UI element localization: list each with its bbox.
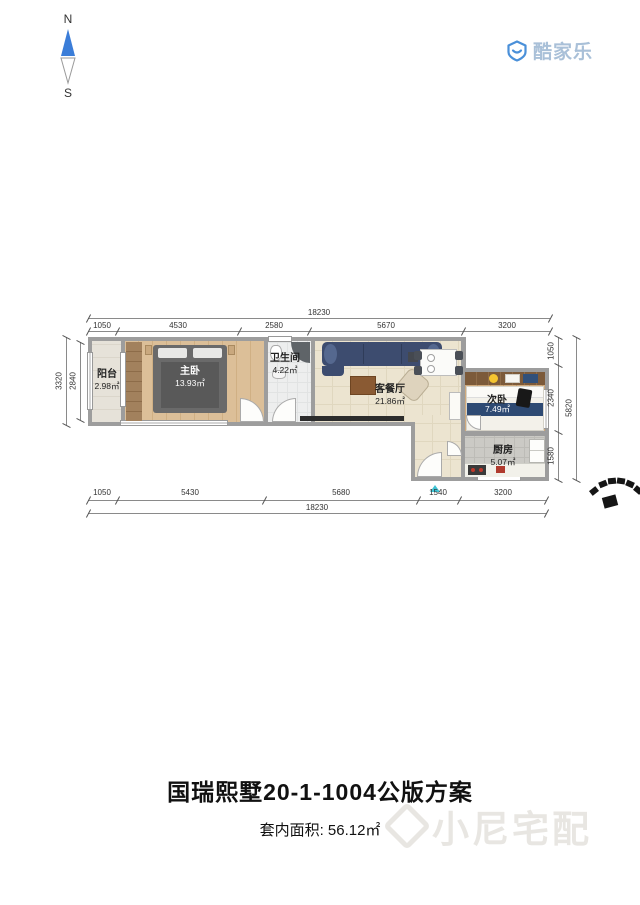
hall-cabinet <box>449 392 461 420</box>
nightstand-right <box>228 345 235 355</box>
bathroom-window <box>268 336 292 342</box>
toy-duck <box>489 374 498 383</box>
room-area: 21.86㎡ <box>350 396 430 407</box>
brand-logo: 酷家乐 <box>506 37 593 64</box>
floorplan-page: N S 酷家乐 主卧 13.93㎡ <box>0 0 640 905</box>
compass-needle-icon <box>55 27 81 85</box>
master-wardrobe <box>126 342 142 421</box>
dim-bottom-seg: 5680 <box>332 488 350 497</box>
room-area: 5.07㎡ <box>480 457 526 468</box>
compass-north-label: N <box>48 12 88 26</box>
plate <box>427 365 435 373</box>
dim-top-seg: 3200 <box>498 321 516 330</box>
room-area: 13.93㎡ <box>153 378 227 389</box>
pillow <box>158 348 187 358</box>
dim-line <box>88 513 546 514</box>
dim-bottom-seg: 5430 <box>181 488 199 497</box>
plan-area-text: 套内面积: 56.12㎡ <box>0 819 640 840</box>
dim-top-seg: 5670 <box>377 321 395 330</box>
dining-table <box>420 349 457 376</box>
nightstand-left <box>145 345 152 355</box>
room-area: 4.22㎡ <box>262 365 308 376</box>
compass-south-label: S <box>48 86 88 100</box>
tick <box>544 509 549 517</box>
stamp-glyph <box>617 477 626 484</box>
room-name: 卫生间 <box>262 352 308 365</box>
dim-top-seg: 4530 <box>169 321 187 330</box>
stamp-glyph <box>608 478 617 485</box>
bathroom-label: 卫生间 4.22㎡ <box>262 352 308 376</box>
dim-top-seg: 1050 <box>93 321 111 330</box>
kujiale-shield-smile-icon <box>506 40 528 62</box>
plan-title: 国瑞熙墅20-1-1004公版方案 <box>0 773 640 807</box>
dim-line <box>80 342 81 420</box>
dim-left-total: 3320 <box>55 372 64 390</box>
dim-line <box>88 331 550 332</box>
folded-bedding <box>505 374 520 383</box>
sofa-seam <box>401 344 402 364</box>
sofa-arm-cushion <box>324 344 337 364</box>
dim-line <box>88 318 550 319</box>
tick <box>548 327 553 335</box>
dining-chair <box>414 366 422 375</box>
dim-top-seg: 2580 <box>265 321 283 330</box>
dim-right-total: 5820 <box>565 399 574 417</box>
room-name: 厨房 <box>480 444 526 457</box>
stamp-glyph <box>602 494 618 508</box>
dim-bottom-seg: 1540 <box>429 488 447 497</box>
burner <box>479 468 483 472</box>
living-dining-label: 客餐厅 21.86㎡ <box>350 383 430 407</box>
dim-right-seg: 2340 <box>547 389 556 407</box>
dim-line <box>558 337 559 480</box>
master-bedroom-label: 主卧 13.93㎡ <box>153 365 227 389</box>
burner <box>471 468 475 472</box>
stamp-glyph <box>633 485 640 495</box>
balcony-label: 阳台 2.98㎡ <box>90 368 124 392</box>
dim-right-seg: 1580 <box>547 447 556 465</box>
second-bedroom-area: 7.49㎡ <box>485 403 510 415</box>
stamp-glyph <box>598 480 608 489</box>
stamp-glyph <box>625 480 635 489</box>
compass: N S <box>48 12 88 100</box>
room-name: 主卧 <box>153 365 227 378</box>
dim-bottom-seg: 3200 <box>494 488 512 497</box>
dim-bottom-total: 18230 <box>306 503 328 512</box>
fridge <box>529 439 545 463</box>
dim-line <box>88 500 546 501</box>
stamp-glyph <box>589 486 599 496</box>
dim-left-inner: 2840 <box>69 372 78 390</box>
dim-line <box>576 337 577 480</box>
sofa-chaise-left <box>322 366 344 376</box>
fridge-seam <box>530 450 544 451</box>
master-bed: 主卧 13.93㎡ <box>153 345 227 413</box>
room-area: 2.98㎡ <box>90 381 124 392</box>
brand-logo-text: 酷家乐 <box>533 37 593 64</box>
dim-bottom-seg: 1050 <box>93 488 111 497</box>
dining-chair <box>414 351 422 360</box>
tick <box>544 496 549 504</box>
pillow <box>193 348 222 358</box>
dim-line <box>66 337 67 425</box>
dining-chair <box>455 366 463 375</box>
room-name: 阳台 <box>90 368 124 381</box>
tick <box>548 314 553 322</box>
dining-chair <box>455 351 463 360</box>
dim-right-seg: 1050 <box>547 342 556 360</box>
kitchen-label: 厨房 5.07㎡ <box>480 444 526 468</box>
folded-bedding-navy <box>523 374 538 383</box>
dim-top-total: 18230 <box>308 308 330 317</box>
stamp-watermark <box>588 472 640 517</box>
plate <box>427 354 435 362</box>
tv-console <box>300 416 404 421</box>
sofa-seam <box>363 344 364 364</box>
room-name: 客餐厅 <box>350 383 430 396</box>
